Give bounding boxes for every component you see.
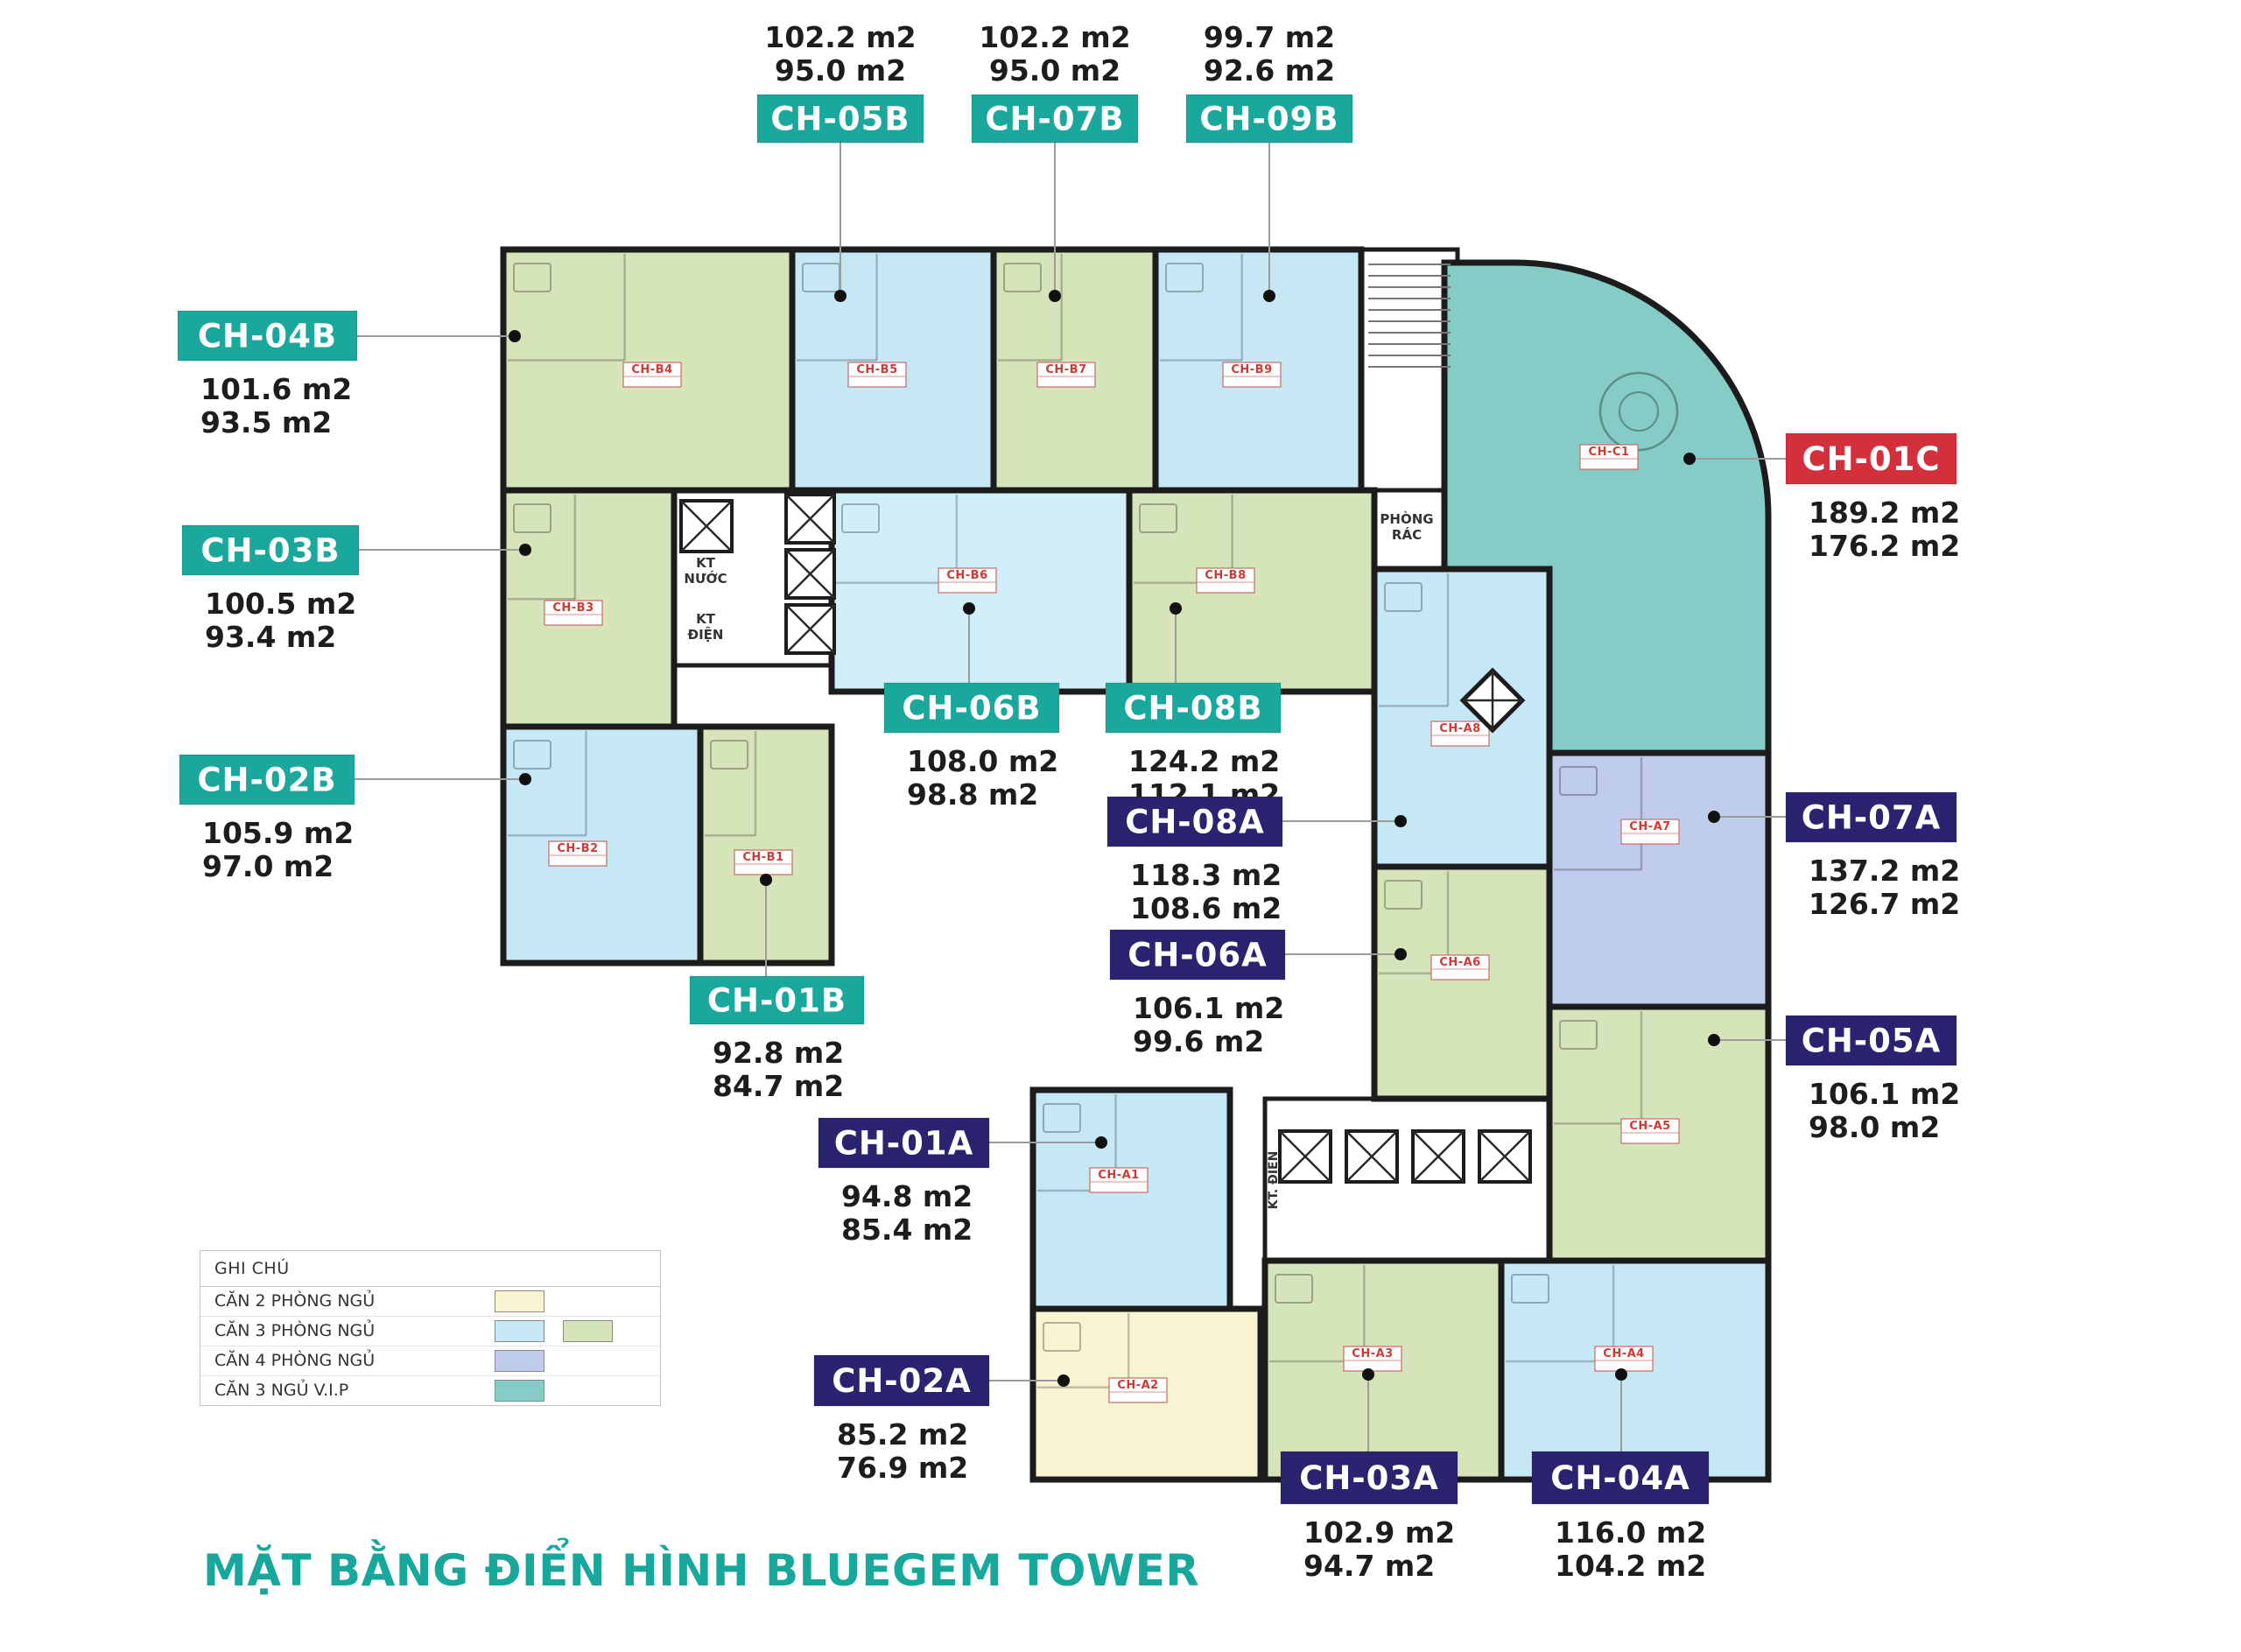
unit-tag-CH-01A: CH-A1 xyxy=(1098,1169,1139,1182)
unit-callout-label-CH-04A: CH-04A xyxy=(1550,1459,1690,1497)
leader-dot-CH-01A xyxy=(1095,1136,1107,1149)
unit-area-CH-09B-2: 92.6 m2 xyxy=(1204,53,1335,88)
unit-CH-07B: CH-B7CH-07B102.2 m295.0 m2 xyxy=(972,20,1156,490)
unit-area-CH-09B-1: 99.7 m2 xyxy=(1204,20,1335,54)
unit-area-CH-08B-1: 124.2 m2 xyxy=(1128,744,1280,778)
unit-CH-04B: CH-B4CH-04B101.6 m293.5 m2 xyxy=(178,250,792,490)
unit-CH-06B: CH-B6CH-06B108.0 m298.8 m2 xyxy=(832,490,1129,812)
leader-dot-CH-05A xyxy=(1708,1034,1720,1046)
unit-tag-CH-01B: CH-B1 xyxy=(742,851,783,864)
unit-tag-CH-07A: CH-A7 xyxy=(1629,820,1670,833)
unit-tag-CH-09B: CH-B9 xyxy=(1231,363,1272,376)
unit-area-CH-05A-1: 106.1 m2 xyxy=(1809,1077,1960,1111)
unit-area-CH-03B-1: 100.5 m2 xyxy=(205,587,356,621)
unit-tag-CH-03B: CH-B3 xyxy=(552,601,594,615)
unit-CH-03A: CH-A3CH-03A102.9 m294.7 m2 xyxy=(1265,1261,1501,1583)
unit-callout-label-CH-02B: CH-02B xyxy=(197,762,336,799)
unit-tag-CH-06A: CH-A6 xyxy=(1439,956,1480,969)
elevator-icon xyxy=(1280,1131,1331,1182)
unit-area-CH-07B-1: 102.2 m2 xyxy=(979,20,1130,54)
unit-area-CH-04B-2: 93.5 m2 xyxy=(200,405,332,439)
unit-CH-08B: CH-B8CH-08B124.2 m2112.1 m2 xyxy=(1106,490,1374,812)
unit-area-CH-06A-2: 99.6 m2 xyxy=(1133,1024,1264,1058)
unit-area-CH-07A-2: 126.7 m2 xyxy=(1809,887,1960,921)
unit-area-CH-04A-2: 104.2 m2 xyxy=(1555,1549,1706,1583)
unit-area-CH-04A-1: 116.0 m2 xyxy=(1555,1515,1706,1550)
elevator-icon xyxy=(1413,1131,1464,1182)
elevator-icon xyxy=(1479,1131,1530,1182)
unit-area-CH-07A-1: 137.2 m2 xyxy=(1809,854,1960,888)
unit-CH-02B: CH-B2CH-02B105.9 m297.0 m2 xyxy=(179,727,700,963)
leader-dot-CH-07B xyxy=(1049,290,1061,302)
legend-label-vip: CĂN 3 NGỦ V.I.P xyxy=(214,1381,348,1400)
unit-callout-label-CH-08A: CH-08A xyxy=(1125,804,1265,841)
leader-dot-CH-01C xyxy=(1683,453,1696,465)
unit-callout-label-CH-08B: CH-08B xyxy=(1123,690,1262,728)
unit-callout-label-CH-09B: CH-09B xyxy=(1199,101,1338,138)
leader-dot-CH-09B xyxy=(1263,290,1275,302)
unit-shape-CH-06A xyxy=(1374,867,1549,1099)
unit-callout-label-CH-01C: CH-01C xyxy=(1802,440,1940,478)
unit-area-CH-03A-1: 102.9 m2 xyxy=(1303,1515,1455,1550)
unit-area-CH-02B-1: 105.9 m2 xyxy=(202,816,354,850)
unit-callout-label-CH-05A: CH-05A xyxy=(1802,1023,1942,1060)
leader-dot-CH-01B xyxy=(760,874,772,886)
unit-CH-09B: CH-B9CH-09B99.7 m292.6 m2 xyxy=(1156,20,1361,490)
elevator-icon xyxy=(1346,1131,1397,1182)
unit-callout-label-CH-06B: CH-06B xyxy=(902,690,1041,728)
unit-tag-CH-02B: CH-B2 xyxy=(557,842,598,855)
elevator-icon xyxy=(681,501,732,552)
unit-callout-label-CH-01B: CH-01B xyxy=(707,982,847,1020)
unit-tag-CH-02A: CH-A2 xyxy=(1117,1379,1158,1392)
unit-callout-label-CH-03B: CH-03B xyxy=(200,532,340,570)
unit-callout-label-CH-04B: CH-04B xyxy=(198,318,337,355)
legend-row-3br: CĂN 3 PHÒNG NGỦ xyxy=(200,1317,660,1346)
unit-area-CH-01A-1: 94.8 m2 xyxy=(841,1179,973,1213)
unit-CH-05B: CH-B5CH-05B102.2 m295.0 m2 xyxy=(757,20,994,490)
legend-row-2br: CĂN 2 PHÒNG NGỦ xyxy=(200,1287,660,1317)
legend-swatch-3br-green xyxy=(563,1320,613,1342)
unit-area-CH-02A-2: 76.9 m2 xyxy=(837,1451,968,1485)
leader-dot-CH-07A xyxy=(1708,811,1720,823)
legend-label-2br: CĂN 2 PHÒNG NGỦ xyxy=(214,1291,375,1311)
unit-tag-CH-08B: CH-B8 xyxy=(1205,569,1246,582)
unit-tag-CH-07B: CH-B7 xyxy=(1045,363,1086,376)
leader-dot-CH-06B xyxy=(963,602,975,615)
unit-shape-CH-07A xyxy=(1549,753,1768,1007)
elevator-icon xyxy=(786,495,834,543)
unit-callout-label-CH-02A: CH-02A xyxy=(832,1362,972,1400)
unit-area-CH-05B-1: 102.2 m2 xyxy=(764,20,916,54)
unit-area-CH-06B-2: 98.8 m2 xyxy=(907,777,1038,812)
unit-tag-CH-03A: CH-A3 xyxy=(1352,1347,1393,1360)
leader-dot-CH-02A xyxy=(1057,1374,1070,1387)
leader-dot-CH-06A xyxy=(1394,948,1407,960)
core-text-3: KT. ĐIỆN xyxy=(1265,1151,1281,1210)
legend-row-4br: CĂN 4 PHÒNG NGỦ xyxy=(200,1346,660,1376)
unit-area-CH-03B-2: 93.4 m2 xyxy=(205,620,336,654)
elevator-icon xyxy=(786,605,834,653)
unit-tag-CH-01C: CH-C1 xyxy=(1589,446,1630,459)
unit-area-CH-04B-1: 101.6 m2 xyxy=(200,372,352,406)
legend-swatch-vip xyxy=(495,1380,544,1402)
unit-CH-04A: CH-A4CH-04A116.0 m2104.2 m2 xyxy=(1501,1261,1768,1583)
unit-tag-CH-06B: CH-B6 xyxy=(946,569,987,582)
unit-CH-01A: CH-A1CH-01A94.8 m285.4 m2 xyxy=(818,1090,1230,1309)
legend-label-3br: CĂN 3 PHÒNG NGỦ xyxy=(214,1321,375,1340)
unit-area-CH-03A-2: 94.7 m2 xyxy=(1303,1549,1435,1583)
leader-dot-CH-08B xyxy=(1170,602,1182,615)
unit-area-CH-01A-2: 85.4 m2 xyxy=(841,1213,973,1247)
unit-tag-CH-05B: CH-B5 xyxy=(856,363,897,376)
unit-callout-label-CH-03A: CH-03A xyxy=(1299,1459,1439,1497)
unit-tag-CH-04A: CH-A4 xyxy=(1603,1347,1644,1360)
legend-header: GHI CHÚ xyxy=(200,1251,660,1287)
leader-dot-CH-08A xyxy=(1394,815,1407,827)
unit-callout-label-CH-01A: CH-01A xyxy=(834,1125,974,1163)
legend: GHI CHÚ CĂN 2 PHÒNG NGỦ CĂN 3 PHÒNG NGỦ … xyxy=(200,1250,661,1406)
unit-area-CH-02B-2: 97.0 m2 xyxy=(202,849,334,883)
elevator-icon xyxy=(786,550,834,598)
unit-area-CH-08A-2: 108.6 m2 xyxy=(1130,891,1282,925)
core-text-2: PHÒNGRÁC xyxy=(1380,510,1433,543)
leader-dot-CH-04A xyxy=(1615,1368,1627,1381)
unit-area-CH-01B-1: 92.8 m2 xyxy=(713,1036,844,1070)
leader-dot-CH-03A xyxy=(1362,1368,1374,1381)
unit-area-CH-08A-1: 118.3 m2 xyxy=(1130,858,1282,892)
unit-CH-01B: CH-B1CH-01B92.8 m284.7 m2 xyxy=(690,727,864,1103)
leader-dot-CH-05B xyxy=(834,290,847,302)
leader-dot-CH-02B xyxy=(519,773,531,785)
unit-CH-05A: CH-A5CH-05A106.1 m298.0 m2 xyxy=(1549,1007,1960,1261)
unit-callout-label-CH-05B: CH-05B xyxy=(770,101,910,138)
unit-area-CH-01C-1: 189.2 m2 xyxy=(1809,496,1960,530)
unit-tag-CH-05A: CH-A5 xyxy=(1629,1120,1670,1133)
legend-row-vip: CĂN 3 NGỦ V.I.P xyxy=(200,1376,660,1405)
unit-CH-07A: CH-A7CH-07A137.2 m2126.7 m2 xyxy=(1549,753,1960,1007)
unit-area-CH-07B-2: 95.0 m2 xyxy=(989,53,1120,88)
unit-callout-label-CH-06A: CH-06A xyxy=(1128,937,1268,974)
legend-swatch-4br xyxy=(495,1350,544,1372)
legend-label-4br: CĂN 4 PHÒNG NGỦ xyxy=(214,1351,375,1370)
unit-tag-CH-08A: CH-A8 xyxy=(1439,722,1480,735)
unit-area-CH-01C-2: 176.2 m2 xyxy=(1809,529,1960,563)
unit-shape-CH-01A xyxy=(1033,1090,1230,1309)
legend-swatch-3br-blue xyxy=(495,1320,544,1342)
unit-area-CH-05B-2: 95.0 m2 xyxy=(775,53,906,88)
legend-swatch-2br xyxy=(495,1290,544,1312)
leader-dot-CH-03B xyxy=(519,544,531,556)
unit-area-CH-02A-1: 85.2 m2 xyxy=(837,1417,968,1452)
unit-CH-02A: CH-A2CH-02A85.2 m276.9 m2 xyxy=(814,1309,1261,1485)
unit-area-CH-01B-2: 84.7 m2 xyxy=(713,1069,844,1103)
unit-callout-label-CH-07A: CH-07A xyxy=(1802,799,1942,837)
unit-area-CH-06B-1: 108.0 m2 xyxy=(907,744,1058,778)
unit-tag-CH-04B: CH-B4 xyxy=(631,363,672,376)
leader-dot-CH-04B xyxy=(509,330,521,342)
unit-CH-03B: CH-B3CH-03B100.5 m293.4 m2 xyxy=(182,490,674,727)
unit-area-CH-06A-1: 106.1 m2 xyxy=(1133,991,1284,1025)
unit-area-CH-05A-2: 98.0 m2 xyxy=(1809,1110,1940,1144)
page-title: MẶT BẰNG ĐIỂN HÌNH BLUEGEM TOWER xyxy=(203,1545,1199,1596)
unit-callout-label-CH-07B: CH-07B xyxy=(985,101,1124,138)
